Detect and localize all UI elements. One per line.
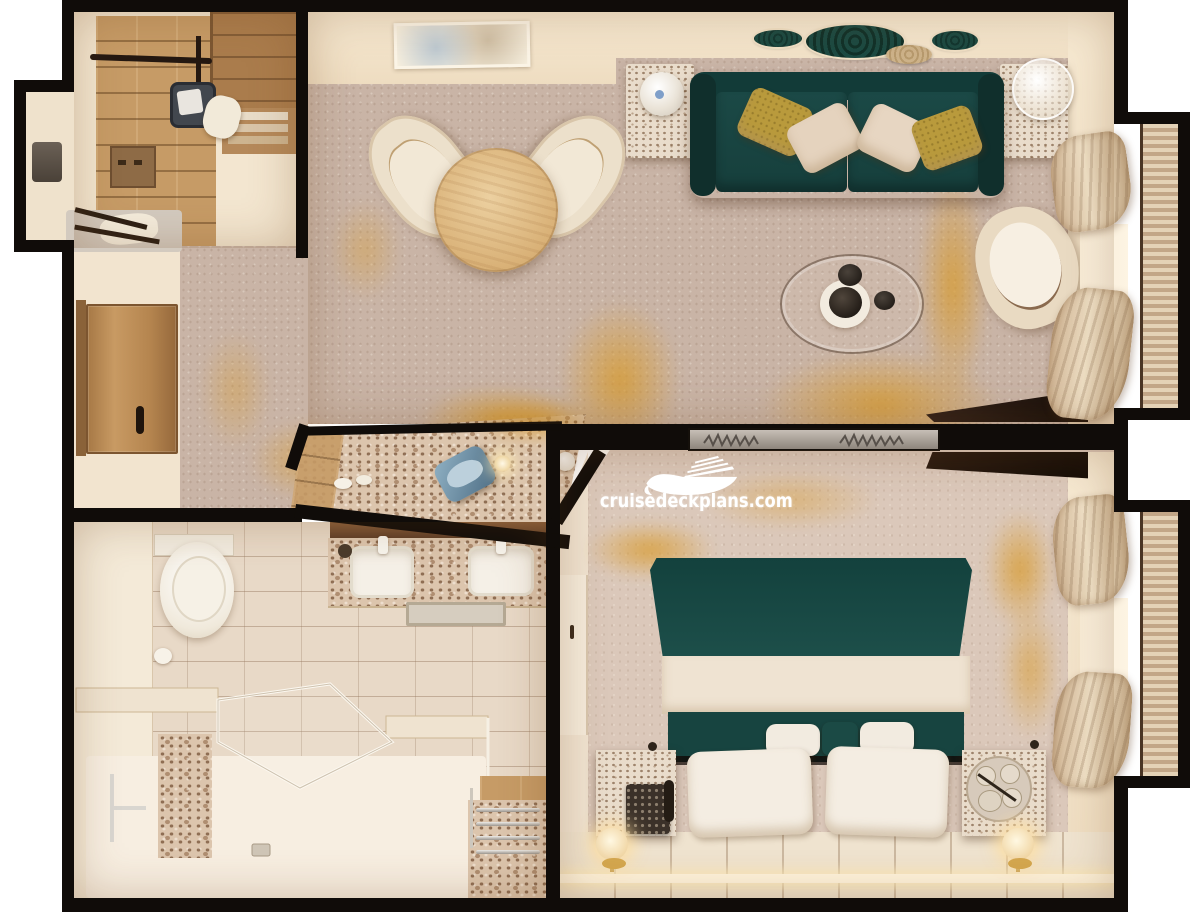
living-window-sheer bbox=[1140, 124, 1181, 408]
suite-floorplan-render: cruisedeckplans.com bbox=[0, 0, 1200, 919]
door-handle bbox=[136, 406, 144, 434]
wall bbox=[1128, 776, 1190, 788]
curtain-living-top bbox=[1046, 129, 1137, 235]
gold-lamp-left bbox=[596, 828, 628, 860]
oval-decor-teal-right bbox=[932, 31, 978, 50]
armchair-seat bbox=[979, 213, 1073, 319]
dining-table bbox=[434, 148, 558, 272]
wall bbox=[62, 0, 74, 84]
partial-watermark-left-edge bbox=[0, 455, 20, 535]
minibar-appliance bbox=[32, 142, 62, 182]
bedroom-door-glow bbox=[1080, 598, 1128, 682]
sphere-lamp-right bbox=[1012, 58, 1074, 120]
gold-lamp-left-base bbox=[602, 858, 626, 869]
coffee-table-bowl-right bbox=[874, 291, 895, 310]
wall bbox=[546, 424, 560, 912]
gold-lamp-right-base bbox=[1008, 858, 1032, 869]
wall bbox=[296, 0, 1128, 12]
wall bbox=[548, 898, 1128, 912]
marble-pillar bbox=[158, 734, 212, 858]
wall bbox=[62, 0, 308, 12]
sofa-arm-right bbox=[978, 74, 1004, 196]
drawer-handle bbox=[118, 160, 126, 165]
wall bbox=[296, 0, 308, 258]
wall bbox=[14, 80, 26, 252]
wall bbox=[1114, 776, 1128, 912]
wall bbox=[1178, 112, 1190, 420]
towel-bar bbox=[476, 836, 540, 840]
vanity-cup bbox=[356, 475, 372, 485]
bedroom-wardrobe bbox=[560, 575, 588, 735]
door-frame bbox=[76, 300, 86, 456]
vanity-blue-chair-seat bbox=[443, 454, 487, 491]
curtain-bedroom-bottom bbox=[1050, 669, 1134, 790]
gold-lamp-right bbox=[1002, 828, 1034, 860]
drawer-handle bbox=[134, 160, 142, 165]
wall bbox=[1128, 408, 1190, 420]
coffee-table-bowl-small bbox=[838, 264, 862, 286]
wall-hook bbox=[648, 742, 657, 751]
wall-hook bbox=[1030, 740, 1039, 749]
bench-wood-ledge bbox=[480, 776, 546, 802]
towel-rack-bench bbox=[468, 800, 546, 898]
wall-art bbox=[394, 21, 531, 69]
bedroom-window-sheer bbox=[1140, 512, 1181, 776]
coffee-table-bowl-large bbox=[829, 287, 862, 318]
wall bbox=[62, 508, 302, 522]
gold-accent bbox=[200, 330, 270, 450]
wall bbox=[62, 244, 74, 912]
watermark-text: cruisedeckplans.com bbox=[600, 490, 782, 512]
vanity-lamp-glow bbox=[494, 455, 511, 472]
bed-pillow-left bbox=[687, 748, 814, 838]
bed-teal-blanket bbox=[650, 558, 972, 658]
gold-accent bbox=[1000, 600, 1060, 740]
bench-glass-edge bbox=[470, 788, 473, 848]
wardrobe-handle bbox=[570, 625, 574, 639]
safe-top bbox=[176, 88, 203, 115]
etched-glass-squiggle bbox=[690, 430, 938, 449]
sofa-arm-left bbox=[690, 74, 716, 196]
tray-cup bbox=[1000, 764, 1020, 784]
telephone-handset bbox=[664, 780, 674, 822]
bed-cream-band bbox=[662, 656, 970, 714]
oval-decor-beige bbox=[886, 45, 932, 64]
wall bbox=[1114, 0, 1128, 124]
gold-accent bbox=[330, 200, 400, 300]
wall bbox=[62, 898, 560, 912]
tray-pot bbox=[978, 790, 1002, 812]
watermark-ornament bbox=[0, 493, 2, 539]
towel-bar bbox=[476, 808, 540, 812]
coffee-tray bbox=[966, 756, 1032, 822]
folded-linen bbox=[228, 136, 288, 144]
wall bbox=[1178, 500, 1190, 788]
platform-light-strip bbox=[560, 874, 1114, 883]
vanity-cup bbox=[334, 478, 352, 489]
entry-door bbox=[86, 304, 178, 454]
bed-pillow-right bbox=[825, 746, 950, 838]
oval-decor-teal-small bbox=[754, 30, 802, 47]
towel-bar bbox=[476, 850, 540, 854]
table-lamp-left-detail bbox=[655, 90, 664, 99]
etched-glass-partition bbox=[688, 428, 940, 451]
towel-bar bbox=[476, 822, 540, 826]
drawer-box bbox=[110, 146, 156, 188]
